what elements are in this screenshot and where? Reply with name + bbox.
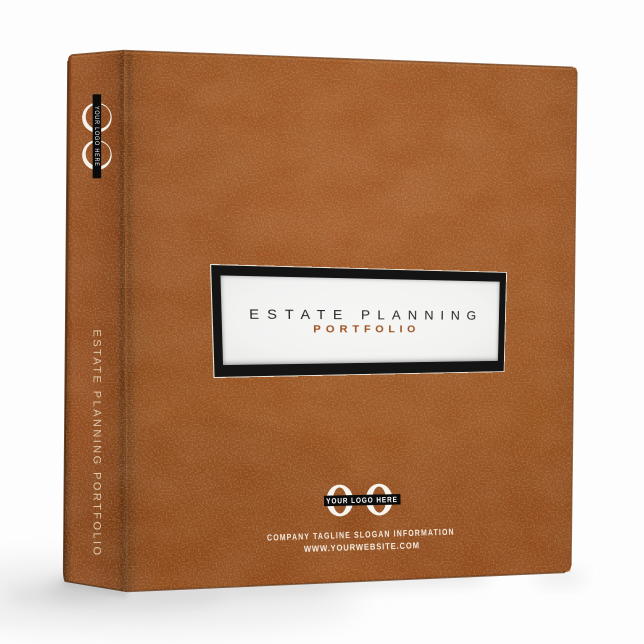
svg-text:ESTATE PLANNING PORTFOLIO: ESTATE PLANNING PORTFOLIO (91, 329, 103, 557)
svg-text:YOUR LOGO HERE: YOUR LOGO HERE (326, 495, 398, 505)
svg-text:YOUR LOGO HERE: YOUR LOGO HERE (93, 106, 99, 167)
